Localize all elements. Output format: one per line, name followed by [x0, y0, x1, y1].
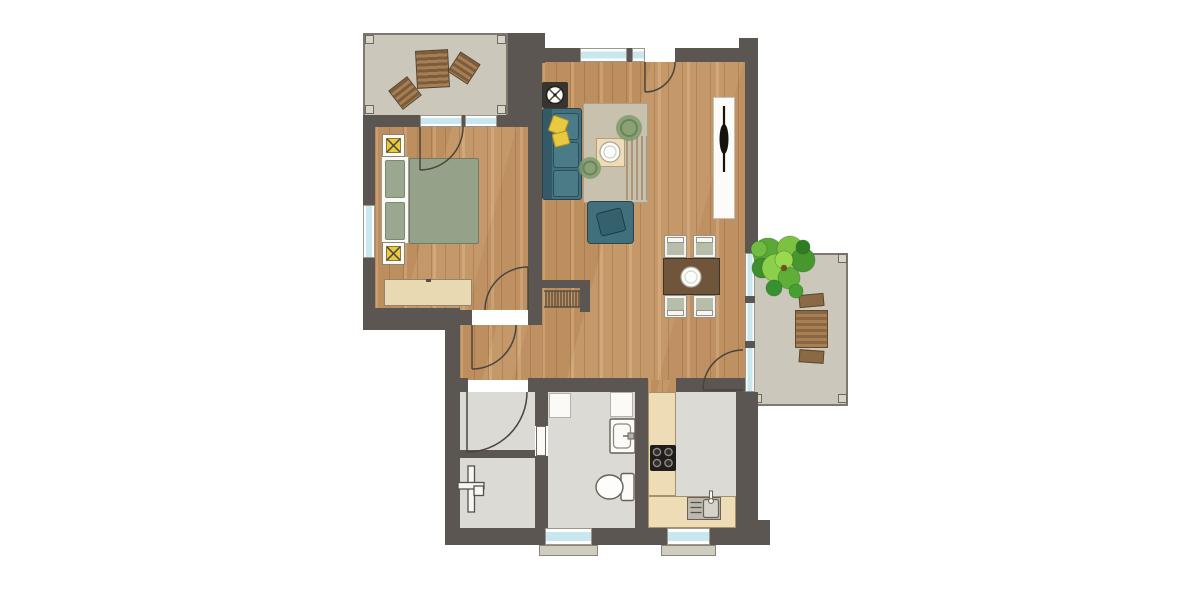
balcony-post — [497, 105, 506, 114]
kitchen-counter-left — [648, 392, 676, 496]
wall — [513, 48, 580, 62]
window — [580, 48, 627, 62]
nightstand-lamp-inner — [386, 138, 401, 153]
wall — [460, 310, 472, 325]
window — [667, 528, 710, 545]
wall — [363, 115, 375, 205]
dining-chair — [694, 236, 715, 257]
nightstand-lamp-inner — [386, 246, 401, 261]
wall — [445, 528, 545, 545]
wall — [745, 48, 758, 253]
kitchen-entry-floor — [648, 380, 676, 392]
bed-pillow — [385, 202, 405, 240]
tv-lowboard — [713, 97, 735, 219]
wall — [528, 378, 635, 392]
armchair-cushion — [595, 207, 626, 237]
picnic-bench — [798, 293, 824, 308]
dining-chair — [665, 296, 686, 317]
wall — [445, 330, 460, 545]
kitchen-sink-unit — [687, 497, 721, 520]
window — [545, 528, 592, 545]
wall — [758, 520, 770, 545]
bed-pillow — [385, 160, 405, 198]
terrace-glazed-wall — [745, 253, 755, 392]
utility-floor-upper — [460, 392, 535, 450]
balcony-post — [497, 35, 506, 44]
radiator-niche-wall — [580, 280, 590, 312]
balcony-post — [365, 105, 374, 114]
window — [465, 115, 497, 127]
terrace-post — [838, 394, 847, 403]
sofa-cushion — [553, 170, 579, 197]
cooktop — [650, 445, 676, 471]
window-mullion — [462, 115, 465, 127]
dining-chair — [694, 296, 715, 317]
floor-plan-canvas — [0, 0, 1200, 600]
bedroom-sideboard — [384, 279, 472, 306]
wall — [635, 378, 648, 528]
wall — [592, 528, 667, 545]
window — [363, 205, 375, 258]
utility-divider-wall — [460, 450, 535, 458]
double-bed-blanket — [409, 158, 479, 244]
wall — [460, 378, 468, 392]
rug-stripe-patch — [626, 136, 647, 200]
dining-chair — [665, 236, 686, 257]
sun-lounger — [415, 49, 450, 89]
picnic-table — [795, 310, 828, 348]
bathroom-appliance-block — [549, 393, 571, 418]
wall — [363, 258, 375, 310]
wall — [535, 392, 548, 426]
wall — [528, 48, 542, 325]
wall — [736, 392, 758, 545]
window-sill — [661, 545, 716, 556]
wall — [535, 456, 548, 528]
coffee-table — [596, 138, 625, 167]
armchair — [587, 201, 634, 244]
bathroom-door-leaf — [536, 426, 546, 456]
bathroom-appliance-block — [610, 392, 633, 417]
balcony-door-glazing — [420, 115, 462, 127]
wood-stove — [542, 82, 568, 108]
window-mullion — [745, 341, 755, 348]
window-mullion — [745, 296, 755, 303]
window — [632, 48, 645, 62]
terrace-post — [838, 254, 847, 263]
wall — [710, 528, 758, 545]
wall — [363, 308, 460, 330]
kitchen-floor — [676, 392, 736, 496]
hallway-floor — [460, 325, 542, 380]
dining-table — [663, 258, 720, 295]
sideboard-handle — [426, 279, 431, 282]
wall — [497, 115, 528, 127]
utility-floor-lower — [460, 458, 535, 528]
wall — [676, 378, 745, 392]
picnic-bench — [799, 349, 825, 364]
balcony-post — [365, 35, 374, 44]
window-sill — [539, 545, 598, 556]
sofa — [542, 108, 582, 200]
